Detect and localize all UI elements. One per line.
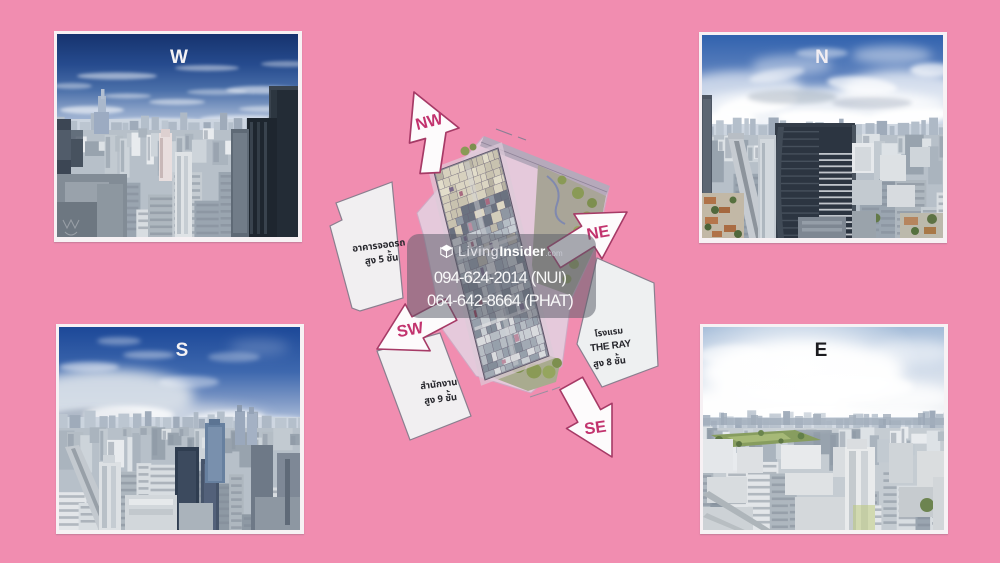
- svg-text:W: W: [170, 47, 188, 68]
- svg-text:E: E: [815, 340, 828, 361]
- svg-text:N: N: [815, 47, 829, 68]
- svg-text:S: S: [176, 340, 189, 361]
- svg-text:SE: SE: [583, 418, 607, 439]
